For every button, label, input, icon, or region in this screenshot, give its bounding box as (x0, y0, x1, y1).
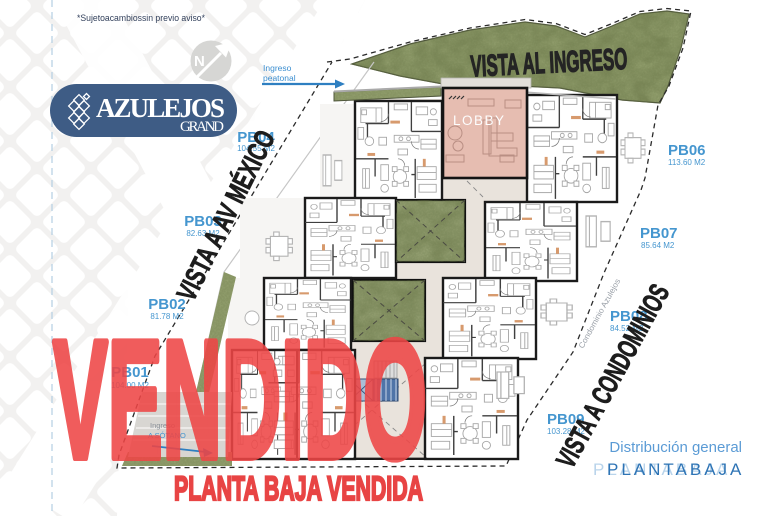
svg-text:N: N (194, 53, 205, 70)
svg-text:peatonal: peatonal (263, 73, 296, 83)
svg-text:PLANTA BAJA VENDIDA: PLANTA BAJA VENDIDA (174, 470, 423, 508)
svg-text:85.64 M2: 85.64 M2 (641, 241, 675, 250)
svg-text:PLANTABAJA: PLANTABAJA (607, 460, 744, 479)
svg-text:LOBBY: LOBBY (453, 113, 506, 128)
svg-text:Ingreso: Ingreso (263, 63, 292, 73)
svg-text:PB07: PB07 (640, 225, 678, 242)
svg-text:*Sujetoacambiossin previo avis: *Sujetoacambiossin previo aviso* (77, 13, 205, 24)
svg-text:GRAND: GRAND (180, 119, 226, 135)
svg-text:Distribución general: Distribución general (609, 439, 742, 456)
svg-text:VENDIDO: VENDIDO (53, 306, 427, 494)
svg-text:PB06: PB06 (668, 142, 706, 159)
svg-text:113.60 M2: 113.60 M2 (668, 158, 706, 167)
